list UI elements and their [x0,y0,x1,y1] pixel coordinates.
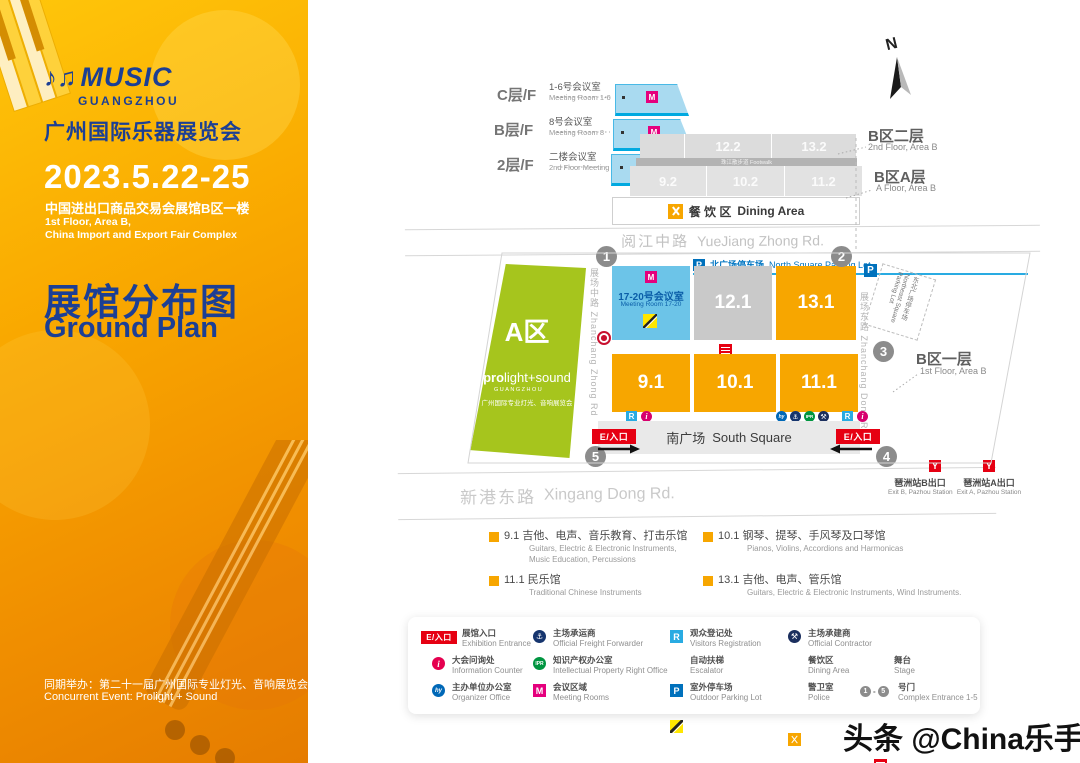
south-square: 南广场 South Square [598,421,860,454]
meeting-rooms-icon: M [646,91,658,103]
information-icon: i [432,657,445,670]
gate-5: 5 [878,686,889,697]
floor-c-name-cn: 1-6号会议室 [549,82,611,93]
hall-meeting-en: Meeting Room 17-20 [612,301,690,308]
circle-decor-mid [0,330,150,520]
legend-ipr-cn: 知识产权办公室 [553,655,668,666]
legend-meeting-cn: 会议区域 [553,682,609,693]
legend-parking-en: Outdoor Parking Lot [690,693,762,703]
legend-info-cn: 大会问询处 [452,655,523,666]
legend-organizer-en: Organizer Office [452,693,512,703]
escalator-icon [643,314,657,328]
gate-2: 2 [831,246,852,267]
floor-b-level: B层/F [494,119,533,140]
dining-area-strip: 餐 饮 区 Dining Area [612,197,860,225]
venue-en-line2: China Import and Export Fair Complex [45,229,237,241]
parking-icon: P [670,684,683,697]
hall-9-2: 9.2 [630,166,707,196]
footwalk-label: 珠江散步道 Footwalk [721,158,772,166]
metro-exit-a-en: Exit A, Pazhou Station [956,489,1022,496]
road-xingang-cn: 新港东路 [460,483,536,509]
metro-icon: Y [929,460,941,472]
music-notes-icon: ♪♫ [44,62,77,93]
organizer-office-icon: hy [432,684,445,697]
legend-registration-en: Visitors Registration [690,639,761,649]
escalator-icon [670,720,683,733]
hall-legend-10-1: 10.1 钢琴、提琴、手风琴及口琴馆 Pianos, Violins, Acco… [703,530,903,554]
legend-dining-cn: 餐饮区 [808,655,849,666]
legend-gates-en: Complex Entrance 1-5 [898,693,978,703]
hall-a-brand-bold: pro [483,370,504,385]
area-b-1f-en: 1st Floor, Area B [920,366,987,376]
compass-label: N [884,35,900,55]
metro-exit-a: 琶洲站A出口 Exit A, Pazhou Station [956,476,1022,496]
hall-legend-9-1: 9.1 吉他、电声、音乐教育、打击乐馆 Guitars, Electric & … [489,530,687,565]
legend-registration-cn: 观众登记处 [690,628,761,639]
metro-exit-a-cn: 琶洲站A出口 [956,476,1022,489]
venue-en-line1: 1st Floor, Area B, [45,216,131,228]
road-xingang-en: Xingang Dong Rd. [544,485,675,504]
hall-9-1: 9.1 [612,354,690,412]
road-yuejiang-en: YueJiang Zhong Rd. [697,232,824,249]
legend-contractor-en: Official Contractor [808,639,872,649]
gate-3: 3 [873,341,894,362]
gate-4: 4 [876,446,897,467]
floor-c-level: C层/F [497,84,536,105]
legend-gates-cn: 号门 [898,682,978,693]
contractor-icon: ⚒ [788,630,801,643]
entrance-badge-left: E/入口 [592,429,636,444]
meeting-rooms-icon: M [533,684,546,697]
ground-plan-poster: ♪♫ MUSIC GUANGZHOU 广州国际乐器展览会 2023.5.22-2… [0,0,1080,763]
entrance-badge-icon: E/入口 [421,631,457,644]
road-yuejiang: 阅江中路 YueJiang Zhong Rd. [405,225,1040,256]
hall-legend-11-1: 11.1 民乐馆 Traditional Chinese Instruments [489,574,642,598]
area-b-af-en: A Floor, Area B [876,183,936,193]
legend-stage-cn: 舞台 [894,655,915,666]
parking-icon: P [864,264,877,277]
footwalk-strip: 珠江散步道 Footwalk [636,158,857,166]
dining-label-cn: 餐 饮 区 [689,203,732,220]
sidebar: ♪♫ MUSIC GUANGZHOU 广州国际乐器展览会 2023.5.22-2… [0,0,308,763]
hall-a-desc: 广州国际专业灯光、音响展览会 [468,397,586,407]
legend-swatch [489,576,499,586]
stage-icon [874,759,887,763]
legend-entrance-en: Exhibition Entrance [462,639,531,649]
legend-escalator-en: Escalator [690,666,724,676]
legend-police-cn: 警卫室 [808,682,834,693]
hall-11-2: 11.2 [785,166,862,196]
guitar-decor [120,440,308,763]
road-yuejiang-cn: 阅江中路 [621,230,689,251]
hall-block-2f: 12.2 13.2 [640,134,856,158]
ipr-office-icon: IPR [533,657,546,670]
hall-a-brand-light: light+sound [504,370,571,385]
metro-icon: Y [983,460,995,472]
entrance-badge-right: E/入口 [836,429,880,444]
meeting-rooms-icon: M [645,271,657,283]
hall-10-1: 10.1 [694,354,776,412]
metro-exit-b: 琶洲站B出口 Exit B, Pazhou Station [888,476,952,496]
legend-info-en: Information Counter [452,666,523,676]
legend-meeting-en: Meeting Rooms [553,693,609,703]
hall-a-name: A区 [468,312,586,349]
dining-icon [788,733,801,746]
legend-contractor-cn: 主场承建商 [808,628,872,639]
legend-freight-cn: 主场承运商 [553,628,643,639]
legend-organizer-cn: 主办单位办公室 [452,682,512,693]
legend-swatch [703,532,713,542]
south-square-en: South Square [712,430,792,445]
hall-block-af: 9.2 10.2 11.2 [630,166,862,196]
hall-a: A区 prolight+sound GUANGZHOU 广州国际专业灯光、音响展… [468,262,586,460]
dining-label-en: Dining Area [737,204,804,218]
metro-exit-b-en: Exit B, Pazhou Station [888,489,952,496]
legend-stage-en: Stage [894,666,915,676]
logo: ♪♫ MUSIC GUANGZHOU 广州国际乐器展览会 [44,62,242,146]
legend-ipr-en: Intellectual Property Right Office [553,666,668,676]
hall-13-2: 13.2 [772,134,856,158]
gate-range-sep: - [873,687,876,696]
floor-2-level: 2层/F [497,154,534,175]
hall-meeting-17-20: M 17-20号会议室 Meeting Room 17-20 [612,266,690,340]
legend-swatch [489,532,499,542]
gate-5: 5 [585,446,606,467]
legend-gates-icons: 1 - 5 [860,686,889,697]
hall-13-1: 13.1 [776,266,856,340]
watermark: 头条 @China乐手 [843,714,1080,758]
legend-escalator-cn: 自动扶梯 [690,655,724,666]
plan-title-en: Ground Plan [44,312,218,345]
police-icon [597,331,611,345]
concurrent-cn: 同期举办：第二十一届广州国际专业灯光、音响展览会 [44,676,308,692]
logo-city-text: GUANGZHOU [78,94,242,108]
south-square-cn: 南广场 [666,428,705,447]
metro-exit-b-cn: 琶洲站B出口 [888,476,952,489]
freight-forwarder-icon: ⚓ [533,630,546,643]
gate-1: 1 [596,246,617,267]
legend-freight-en: Official Freight Forwarder [553,639,643,649]
legend-police-en: Police [808,693,834,703]
venue-cn: 中国进出口商品交易会展馆B区一楼 [45,198,249,217]
hall-a-brand-city: GUANGZHOU [494,387,586,393]
event-dates: 2023.5.22-25 [44,158,251,196]
dining-icon [668,204,683,219]
concurrent-en: Concurrent Event: Prolight + Sound [44,691,217,703]
legend-entrance-cn: 展馆入口 [462,628,531,639]
registration-icon: R [670,630,683,643]
hall-11-1: 11.1 [780,354,858,412]
legend-parking-cn: 室外停车场 [690,682,762,693]
area-b-2f-en: 2nd Floor, Area B [868,142,938,152]
hall-legend-13-1: 13.1 吉他、电声、管乐馆 Guitars, Electric & Elect… [703,574,961,598]
floor-b-name-cn: 8号会议室 [549,117,604,128]
floor-b-name-en: Meeting Room 8 [549,128,604,137]
logo-title-cn: 广州国际乐器展览会 [44,116,242,146]
legend-dining-en: Dining Area [808,666,849,676]
hall-12-2: 12.2 [685,134,772,158]
gate-1: 1 [860,686,871,697]
logo-music-text: MUSIC [81,62,173,93]
hall-10-2: 10.2 [707,166,785,196]
legend-swatch [703,576,713,586]
northeast-parking-label: 东北广场停车场 Northeast Square Parking Lot [880,271,920,333]
floor-c-name-en: Meeting Room 1-6 [549,93,611,102]
hall-12-1: 12.1 [694,266,772,340]
